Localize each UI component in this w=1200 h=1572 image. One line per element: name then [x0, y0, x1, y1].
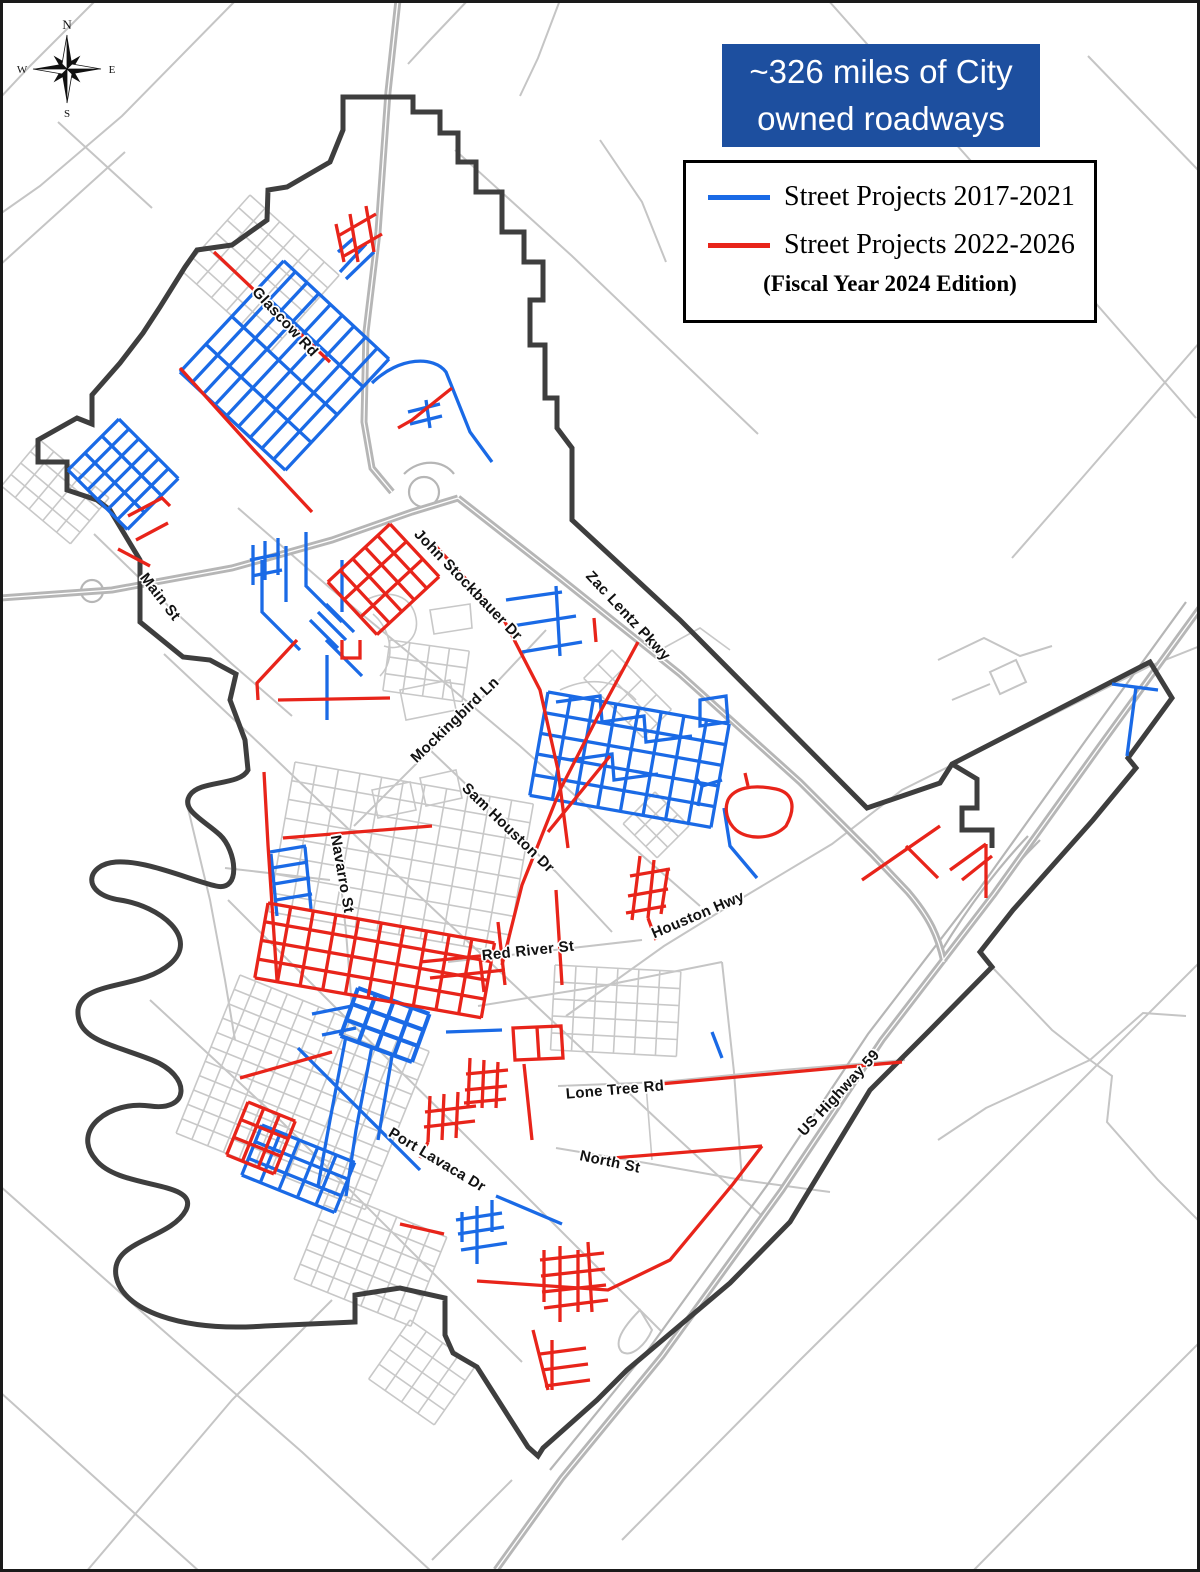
- legend-row-2017-2021: Street Projects 2017-2021: [708, 183, 1094, 211]
- map-title: ~326 miles of City owned roadways: [722, 44, 1040, 147]
- compass-north-label: N: [62, 17, 72, 32]
- compass-south-label: S: [64, 108, 70, 120]
- legend-line-2017-2021: [708, 195, 770, 200]
- legend-note: (Fiscal Year 2024 Edition): [686, 271, 1094, 297]
- compass-west-label: W: [17, 64, 28, 76]
- city-street-projects-map-page: Glascow RdMain StJohn Stockbauer DrZac L…: [0, 0, 1200, 1572]
- highway-ramps: [81, 463, 1186, 1470]
- map-title-line1: ~326 miles of City: [722, 49, 1040, 96]
- compass-rose-icon: N E S W: [12, 14, 122, 126]
- legend-row-2022-2026: Street Projects 2022-2026: [708, 231, 1094, 259]
- map-title-line2: owned roadways: [722, 96, 1040, 143]
- legend-label-2017-2021: Street Projects 2017-2021: [784, 181, 1075, 213]
- legend: Street Projects 2017-2021 Street Project…: [683, 160, 1097, 323]
- compass-east-label: E: [109, 64, 116, 76]
- projects-2017-2021: [68, 238, 1158, 1264]
- legend-line-2022-2026: [708, 243, 770, 248]
- legend-label-2022-2026: Street Projects 2022-2026: [784, 229, 1075, 261]
